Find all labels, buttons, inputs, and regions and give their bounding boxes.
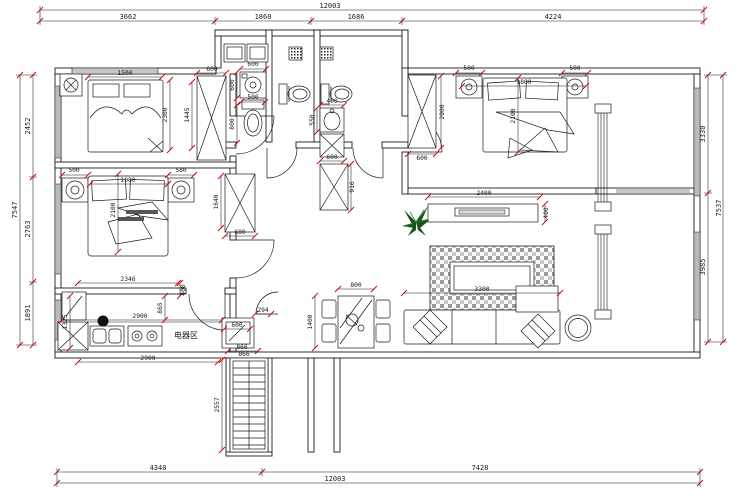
dim-left-overall: 7547 xyxy=(11,202,19,219)
dining-table xyxy=(338,296,374,348)
ceiling-fixture-symbol xyxy=(60,74,82,96)
dim-top-s1: 3662 xyxy=(120,13,137,21)
dim-bed1-wardrobe-h: 1445 xyxy=(184,107,191,122)
dim-kitchen-bottom: 2900 xyxy=(140,355,155,362)
dim-left-s2: 2763 xyxy=(24,221,32,238)
dim-top-s3: 1686 xyxy=(348,13,365,21)
dim-bed2-length: 2100 xyxy=(110,202,117,217)
dim-toilet-depth: 800 xyxy=(229,118,236,130)
nightstand-left xyxy=(456,76,482,98)
dim-kitchen-top-side: 400 xyxy=(180,284,187,296)
dimension-chain-left: 7547 2452 2763 1891 xyxy=(11,72,37,348)
toilet xyxy=(242,100,264,136)
dim-basin-width: 400 xyxy=(326,98,338,105)
nightstand-right xyxy=(168,178,194,202)
dim-washer-depth: 600 xyxy=(229,79,236,91)
dimension-chain-top: 12003 3662 1860 1686 4224 xyxy=(37,2,707,25)
floor-plan-drawing: 12003 3662 1860 1686 4224 4340 7428 1200… xyxy=(0,0,740,500)
dim-bed2-wardrobe-h: 1640 xyxy=(213,194,220,209)
double-bed xyxy=(483,78,574,158)
dim-bed2-width: 1080 xyxy=(120,177,135,184)
toilet-bath1 xyxy=(279,84,310,104)
hall-cabinet-tall xyxy=(320,164,348,210)
dim-master-bed-width: 1800 xyxy=(516,79,531,86)
dim-left-s3: 1891 xyxy=(24,305,32,322)
floor-plan-canvas: 12003 3662 1860 1686 4224 4340 7428 1200… xyxy=(0,0,740,500)
dining-area: 800 1400 xyxy=(307,282,390,351)
floor-drain xyxy=(320,47,333,60)
dim-top-s2: 1860 xyxy=(255,13,272,21)
dim-master-ns-left: 500 xyxy=(463,65,475,72)
dim-basin-depth: 550 xyxy=(309,114,316,126)
dim-bed1-wardrobe-w: 600 xyxy=(206,66,218,73)
entry-hall-cabinet: 2557 866 xyxy=(214,351,268,453)
balcony-divider-window xyxy=(595,104,611,319)
wardrobe xyxy=(197,76,226,160)
dim-master-wardrobe-w: 600 xyxy=(416,155,428,162)
dim-rug-width: 3300 xyxy=(474,286,489,293)
dim-bath-cabinet-w: 600 xyxy=(326,154,338,161)
dim-right-overall: 7537 xyxy=(715,200,723,217)
dim-kitchen-depth-left: 1325 xyxy=(62,314,69,329)
wash-basin xyxy=(320,108,344,132)
dim-top-s4: 4224 xyxy=(545,13,562,21)
dim-hall-cabinet-width: 866 xyxy=(238,351,250,358)
wok-burner xyxy=(98,316,109,327)
wardrobe xyxy=(225,174,255,232)
dim-kitchen-depth-mid: 865 xyxy=(157,302,164,314)
dim-hall-cabinet-height: 2557 xyxy=(214,397,221,412)
side-table xyxy=(565,315,591,341)
dim-hall-cabinet-h: 916 xyxy=(349,181,356,193)
master-bedroom: 2000 600 500 500 1800 2100 xyxy=(405,65,591,162)
dimension-chain-right: 3330 3985 7537 xyxy=(699,72,727,345)
dim-master-ns-right: 500 xyxy=(569,65,581,72)
wardrobe xyxy=(408,75,436,148)
sofa-chaise xyxy=(516,286,558,312)
dim-bottom-overall: 12003 xyxy=(324,475,345,483)
dim-tv-wall: 2400 xyxy=(476,190,491,197)
chair xyxy=(322,324,336,342)
dim-dining-length: 1400 xyxy=(307,314,314,329)
dim-top-overall: 12003 xyxy=(319,2,340,10)
chair xyxy=(376,300,390,318)
chair xyxy=(376,324,390,342)
dim-kitchen-mid: 2900 xyxy=(132,313,147,320)
chair xyxy=(322,300,336,318)
dim-entry-gap: 294 xyxy=(257,307,269,314)
dim-bed1-width: 1500 xyxy=(117,70,132,77)
dim-tv-depth: 400 xyxy=(543,207,550,219)
nightstand-left xyxy=(62,178,88,202)
dim-bed2-ns-left: 500 xyxy=(68,167,80,174)
double-bed xyxy=(88,176,168,256)
dim-master-bed-length: 2100 xyxy=(510,108,517,123)
bed-runner xyxy=(126,210,158,214)
dimension-chain-bottom: 4340 7428 12003 xyxy=(54,464,703,487)
tv-screen xyxy=(459,210,505,214)
tv-cabinet xyxy=(428,204,538,222)
appliance-zone-label: 电器区 xyxy=(174,330,198,340)
double-bed xyxy=(88,80,163,152)
dim-fridge-width: 600 xyxy=(231,322,243,329)
dim-fridge-depth: 866 xyxy=(236,344,248,351)
dim-bed1-length: 2300 xyxy=(162,107,169,122)
plant xyxy=(402,206,432,236)
dim-kitchen-top: 2346 xyxy=(120,276,135,283)
stove xyxy=(128,326,162,346)
dim-toilet-width: 500 xyxy=(247,94,259,101)
dim-left-s1: 2452 xyxy=(24,118,32,135)
dim-bed2-wardrobe-w: 680 xyxy=(234,229,246,236)
dim-bed2-ns-right: 580 xyxy=(175,167,187,174)
dim-bottom-s2: 7428 xyxy=(472,464,489,472)
floor-drain xyxy=(289,47,302,60)
bedroom-mid-left: 500 580 1080 2100 1640 680 xyxy=(59,167,258,256)
bedroom-top-left: 1500 2300 600 1445 xyxy=(60,66,229,160)
living-room: 2400 400 3300 xyxy=(401,190,591,348)
dim-master-wardrobe-h: 2000 xyxy=(439,104,446,119)
dim-dining-width: 800 xyxy=(350,282,362,289)
dim-bottom-s1: 4340 xyxy=(150,464,167,472)
